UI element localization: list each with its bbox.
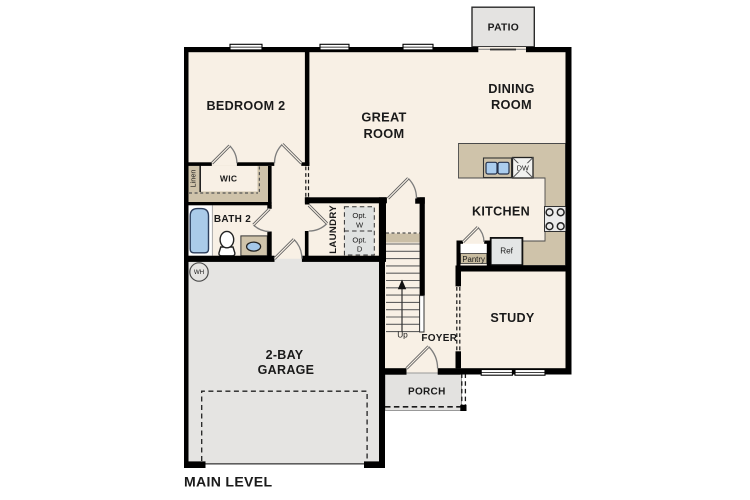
svg-text:LAUNDRY: LAUNDRY [328, 205, 339, 254]
svg-text:MAIN LEVEL: MAIN LEVEL [184, 474, 272, 490]
svg-text:BEDROOM 2: BEDROOM 2 [207, 99, 286, 113]
svg-text:Opt.: Opt. [352, 235, 366, 244]
svg-text:DW: DW [517, 164, 529, 173]
svg-text:GREAT: GREAT [361, 110, 406, 125]
svg-text:W: W [356, 220, 364, 229]
svg-text:WH: WH [194, 269, 204, 276]
svg-text:Ref: Ref [500, 247, 513, 256]
svg-text:PORCH: PORCH [408, 386, 446, 397]
svg-text:KITCHEN: KITCHEN [472, 205, 530, 219]
svg-text:2-BAY: 2-BAY [266, 348, 304, 362]
svg-text:Linen: Linen [188, 169, 197, 187]
svg-text:ROOM: ROOM [491, 97, 532, 112]
svg-text:D: D [357, 245, 363, 254]
svg-text:Up: Up [397, 330, 408, 340]
svg-text:Pantry: Pantry [462, 255, 485, 264]
svg-text:GARAGE: GARAGE [258, 363, 315, 377]
svg-text:PATIO: PATIO [488, 23, 519, 34]
svg-text:FOYER: FOYER [421, 333, 457, 344]
svg-text:Opt.: Opt. [352, 211, 366, 220]
svg-text:BATH 2: BATH 2 [214, 214, 251, 225]
svg-text:DINING: DINING [488, 81, 535, 96]
svg-text:ROOM: ROOM [363, 126, 404, 141]
svg-text:STUDY: STUDY [490, 311, 534, 325]
svg-text:WIC: WIC [220, 173, 237, 183]
